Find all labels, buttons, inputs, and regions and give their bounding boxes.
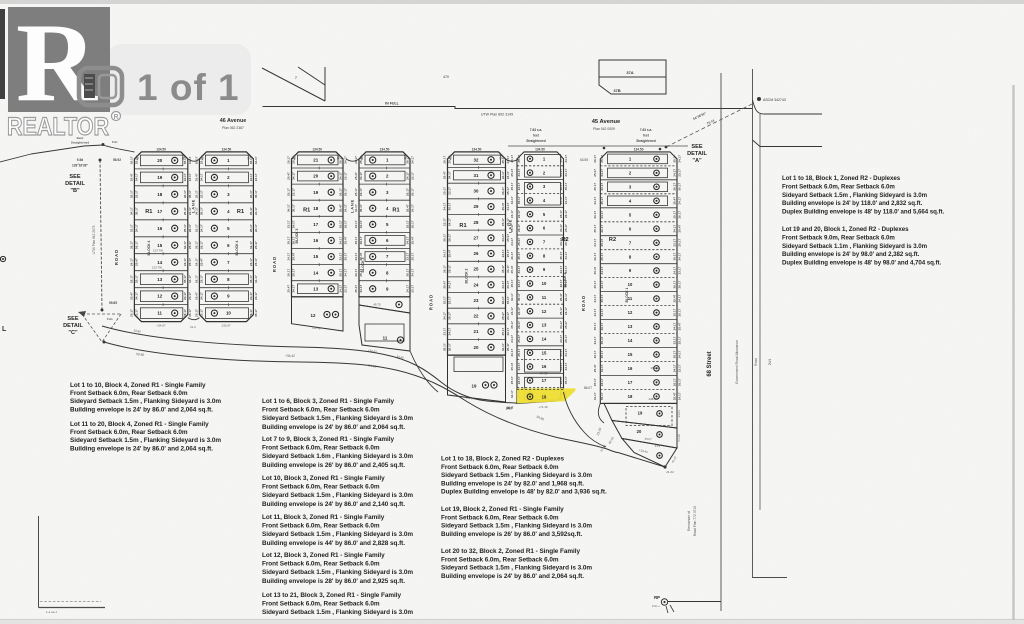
svg-text:R: R xyxy=(113,114,118,121)
svg-text:REALTOR: REALTOR xyxy=(7,113,109,141)
svg-text:1 of 1: 1 of 1 xyxy=(137,67,240,108)
